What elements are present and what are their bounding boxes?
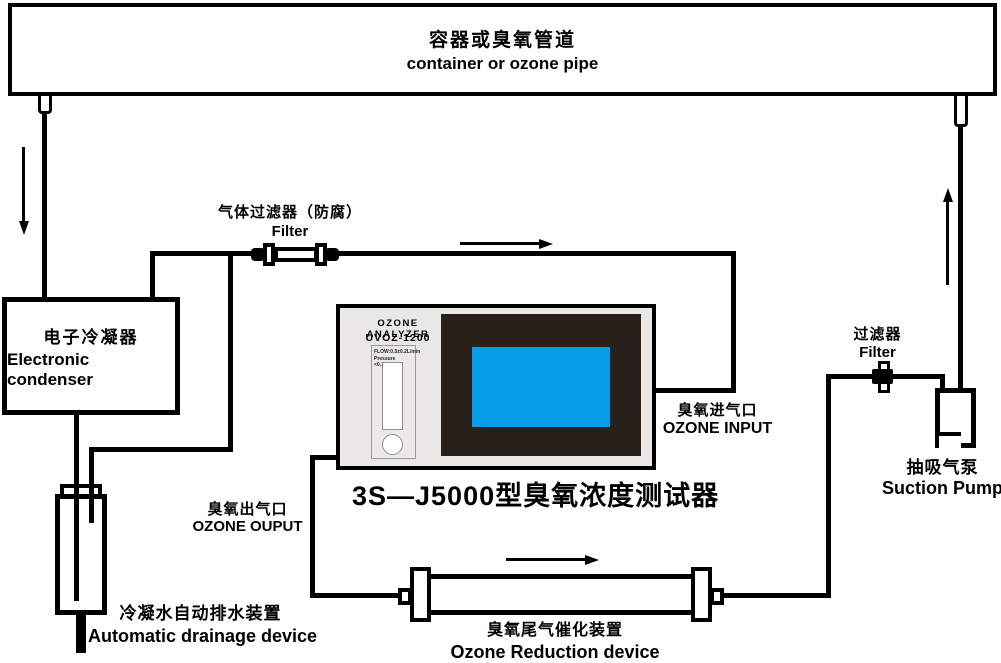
right-filter-label-en: Filter	[820, 344, 935, 361]
analyzer-model: UVOZ-1200	[348, 332, 448, 344]
reduction-label-en: Ozone Reduction device	[440, 642, 670, 663]
pump-label-zh: 抽吸气泵	[880, 458, 1001, 478]
reduction-left-cap	[410, 567, 431, 622]
gas-filter-label-zh: 气体过滤器（防腐）	[215, 204, 365, 221]
ozone-input-label-zh: 臭氧进气口	[645, 402, 790, 419]
pump-label-en: Suction Pump	[880, 478, 1001, 499]
ozone-input-label-en: OZONE INPUT	[645, 420, 790, 438]
flow-arrow-right2-icon	[585, 555, 599, 565]
flow-arrow-right1-icon	[539, 239, 553, 249]
drainage-outlet-stub	[76, 613, 86, 653]
flow-arrow-right2-line	[506, 558, 586, 561]
pipe-right-riser	[826, 374, 831, 598]
pipe-output-to-reduction	[310, 593, 400, 598]
pipe-pump-to-container	[958, 124, 963, 390]
flow-arrow-down-line	[22, 147, 25, 223]
reduction-right-nipple	[710, 588, 724, 605]
ozone-output-label-en: OZONE OUPUT	[180, 518, 315, 535]
drainage-label-en: Automatic drainage device	[88, 626, 313, 647]
suction-pump-port	[939, 432, 961, 452]
pipe-container-to-condenser	[42, 111, 47, 298]
container-pipe-label-en: container or ozone pipe	[407, 54, 599, 74]
drainage-label-zh: 冷凝水自动排水装置	[88, 604, 313, 624]
analyzer-screen-bezel	[441, 314, 641, 456]
drainage-body	[55, 494, 107, 615]
pipe-input-vertical	[731, 251, 736, 393]
pipe-drain-branch-vertical	[228, 251, 233, 452]
pipe-condenser-drain-tube	[74, 415, 79, 601]
condenser-label-en: Electronic condenser	[7, 350, 175, 390]
container-pipe-box: 容器或臭氧管道 container or ozone pipe	[8, 3, 997, 96]
analyzer-device: OZONE ANALYZER UVOZ-1200 FLOW:0.5±0.2L/m…	[336, 304, 656, 470]
flow-meter-panel: FLOW:0.5±0.2L/minPressure <0.1MPa	[371, 345, 416, 459]
pipe-main-horizontal	[150, 251, 735, 256]
pipe-drain-tube-short	[89, 447, 94, 523]
pipe-input-horizontal	[654, 388, 736, 393]
container-pipe-label-zh: 容器或臭氧管道	[429, 25, 576, 52]
pipe-drain-branch-horizontal	[89, 447, 233, 452]
analyzer-screen	[472, 347, 610, 427]
diagram-title: 3S—J5000型臭氧浓度测试器	[352, 481, 682, 512]
pipe-connector-right	[954, 96, 968, 127]
flow-meter-tube	[382, 362, 403, 430]
condenser-box: 电子冷凝器 Electronic condenser	[2, 297, 180, 415]
flow-knob[interactable]	[382, 434, 403, 455]
right-filter-label-zh: 过滤器	[820, 326, 935, 343]
condenser-label-zh: 电子冷凝器	[44, 323, 139, 348]
flow-arrow-up-line	[946, 199, 949, 285]
reduction-tube	[429, 574, 693, 615]
flow-arrow-right1-line	[460, 242, 540, 245]
ozone-output-label-zh: 臭氧出气口	[180, 501, 315, 518]
gas-filter-label-en: Filter	[215, 223, 365, 240]
flow-arrow-down-icon	[19, 221, 29, 235]
pipe-condenser-riser	[150, 251, 155, 297]
reduction-right-cap	[691, 567, 712, 622]
flow-arrow-up-icon	[943, 188, 953, 202]
reduction-label-zh: 臭氧尾气催化装置	[440, 622, 670, 640]
pipe-reduction-to-riser	[722, 593, 831, 598]
